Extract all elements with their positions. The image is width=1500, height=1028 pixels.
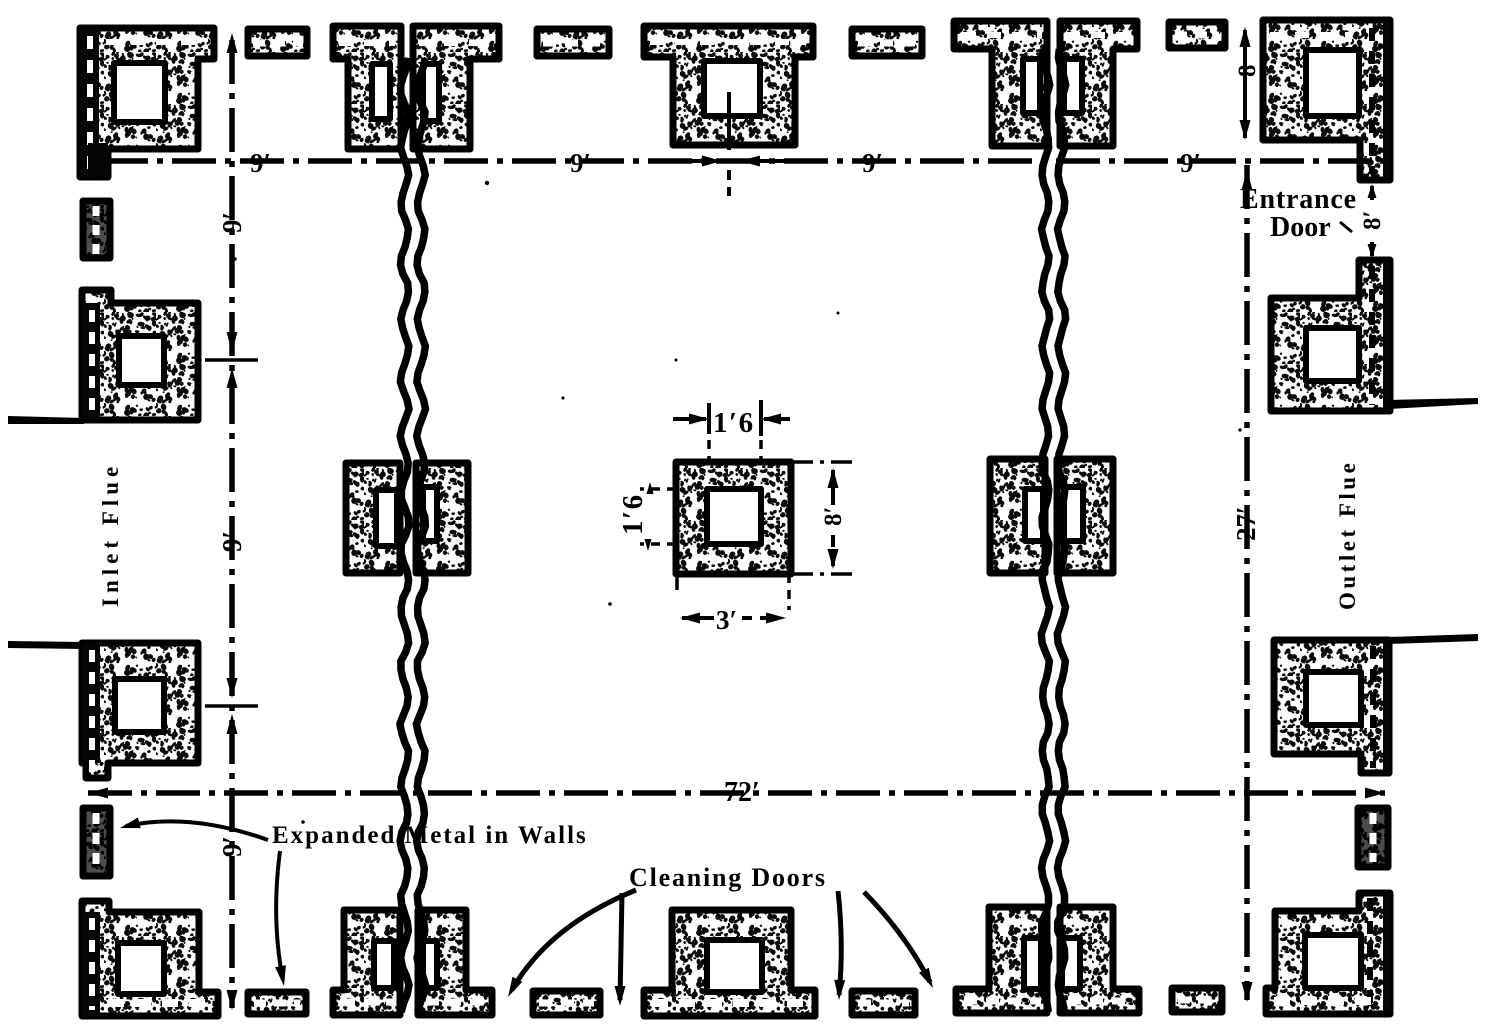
svg-text:9′: 9′ bbox=[217, 531, 247, 552]
svg-text:8′: 8′ bbox=[820, 506, 847, 526]
svg-text:1′6: 1′6 bbox=[617, 493, 649, 535]
svg-text:Outlet Flue: Outlet Flue bbox=[1335, 460, 1360, 610]
svg-text:72′: 72′ bbox=[724, 777, 760, 808]
svg-text:8′: 8′ bbox=[1359, 210, 1386, 230]
svg-text:8: 8 bbox=[1234, 65, 1261, 78]
svg-text:9′: 9′ bbox=[250, 148, 271, 178]
svg-text:Inlet Flue: Inlet Flue bbox=[98, 462, 123, 607]
svg-text:Entrance: Entrance bbox=[1240, 184, 1357, 215]
svg-text:9′: 9′ bbox=[862, 148, 883, 178]
svg-text:1′6: 1′6 bbox=[713, 407, 755, 439]
svg-text:9′: 9′ bbox=[1180, 148, 1201, 178]
svg-text:9′: 9′ bbox=[217, 212, 247, 233]
svg-text:27′: 27′ bbox=[1231, 506, 1261, 541]
svg-text:9′: 9′ bbox=[570, 148, 591, 178]
svg-text:9′: 9′ bbox=[217, 836, 247, 857]
svg-text:Cleaning Doors: Cleaning Doors bbox=[629, 863, 827, 892]
svg-text:Expanded Metal in Walls: Expanded Metal in Walls bbox=[272, 822, 588, 849]
svg-text:Door: Door bbox=[1270, 212, 1331, 243]
svg-text:3′: 3′ bbox=[716, 605, 737, 635]
